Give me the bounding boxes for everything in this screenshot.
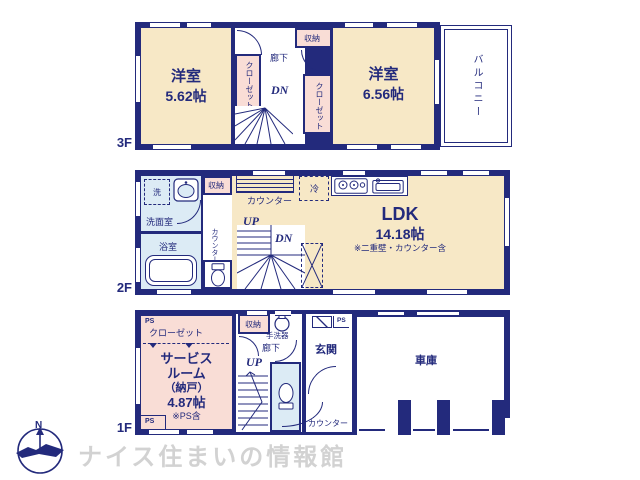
floor-3f-plan: 洋室 5.62帖 クローゼット 廊下: [135, 22, 440, 150]
window: [135, 182, 141, 216]
service-room-note: ※PS含: [172, 411, 201, 421]
stairs-3f: [235, 106, 293, 144]
window: [427, 289, 467, 295]
toilet-2f: [203, 260, 232, 289]
stairs-3f-dn-label: DN: [271, 83, 288, 97]
balcony-3f: バルコニー: [440, 25, 512, 147]
closet-1f-label: クローゼット: [149, 328, 203, 338]
stairs-1f: [238, 368, 268, 432]
garage-opening: [357, 418, 510, 435]
washer-label: 洗: [153, 188, 161, 197]
compass-north-icon: [12, 424, 68, 476]
garage-curb-line: [359, 429, 385, 431]
ps-entry-box: PS: [333, 316, 349, 328]
garage-curb-line: [413, 429, 435, 431]
fridge-label: 冷: [310, 184, 319, 194]
hanger-mark-icon: [149, 343, 157, 348]
hand-basin-icon: [273, 314, 291, 332]
counter-1f-label: カウンター: [308, 419, 348, 428]
window: [378, 311, 404, 316]
window: [347, 144, 377, 150]
room-3f-east-name: 洋室: [368, 66, 398, 83]
kitchen-2f: [331, 176, 408, 196]
service-room-line2: ルーム: [167, 366, 206, 381]
fridge-icon: 冷: [299, 176, 329, 201]
window: [187, 22, 211, 28]
ps-bottom-label: PS: [145, 418, 154, 426]
company-watermark: ナイス住まいの情報館: [78, 437, 347, 472]
window: [417, 311, 459, 316]
floorplan-canvas: 洋室 5.62帖 クローゼット 廊下: [0, 0, 640, 480]
closet-3f-west: クローゼット: [235, 54, 261, 112]
storage-2f: 収納: [203, 176, 232, 195]
stairs-fan-icon: [235, 106, 293, 144]
floor-1f-plan: PS クローゼット サービス ルーム （納戸） 4.87帖 ※PS含: [135, 310, 510, 435]
floor-2f-plan: 洗 洗面室 浴室 収納 カウンター: [135, 170, 510, 295]
closet-3f-west-label: クローゼット: [245, 61, 253, 109]
room-3f-west-size: 5.62帖: [165, 88, 206, 104]
window: [157, 289, 191, 295]
washing-machine-icon: 洗: [144, 179, 170, 205]
window: [275, 310, 291, 316]
entrance-1f: PS 玄関 カウンター: [306, 314, 352, 432]
room-1f-service: PS クローゼット サービス ルーム （納戸） 4.87帖 ※PS含: [141, 316, 232, 429]
stairs-2f-dn-label: DN: [275, 231, 292, 245]
hand-basin-label: 手洗器: [266, 331, 289, 340]
window: [149, 429, 179, 435]
room-3f-west: 洋室 5.62帖: [141, 28, 231, 144]
entrance-label: 玄関: [315, 344, 337, 356]
window: [343, 170, 365, 176]
compass-n-label: N: [35, 420, 42, 432]
counter-2f-side-label: カウンター: [211, 228, 218, 263]
garage-pillar: [398, 400, 411, 435]
counter-2f-top-label: カウンター: [247, 196, 292, 206]
window: [463, 170, 489, 176]
window: [387, 22, 417, 28]
stairs-2f-icon: [237, 225, 305, 289]
window: [150, 22, 180, 28]
service-room-size: 4.87帖: [167, 395, 205, 410]
garage-label: 車庫: [415, 355, 437, 367]
stairs-2f-up-label: UP: [243, 214, 259, 228]
floor-2f-label: 2F: [108, 280, 132, 295]
service-room-line1: サービス: [160, 351, 212, 366]
stairs-1f-up-label: UP: [246, 355, 262, 369]
closet-3f-east: クローゼット: [303, 74, 332, 134]
washbasin-icon: [173, 178, 199, 202]
floor-3f-label: 3F: [108, 135, 132, 150]
balcony-label: バルコニー: [471, 54, 481, 119]
window: [421, 170, 447, 176]
window: [135, 56, 141, 102]
window: [247, 310, 267, 316]
window: [333, 289, 375, 295]
counter-2f-top: [236, 174, 294, 193]
window: [345, 22, 373, 28]
closet-3f-east-label: クローゼット: [315, 82, 323, 130]
ps-top-label: PS: [145, 318, 154, 326]
pantry-x-brace-icon: [301, 243, 323, 288]
shoe-cabinet-hatch: [312, 316, 332, 328]
room-3f-west-name: 洋室: [171, 68, 201, 85]
toilet-icon: [209, 263, 227, 287]
window: [135, 348, 141, 404]
storage-3f: 収納: [295, 28, 332, 48]
ldk-name: LDK: [382, 204, 419, 224]
ldk-size: 14.18帖: [375, 226, 424, 242]
window: [504, 198, 510, 246]
storage-3f-label: 収納: [304, 34, 320, 43]
floor-1f-label: 1F: [108, 420, 132, 435]
window: [153, 144, 191, 150]
storage-2f-label: 収納: [208, 181, 224, 190]
service-room-line3: （納戸）: [165, 382, 209, 394]
hallway-3f-label: 廊下: [270, 53, 288, 63]
bathroom-label: 浴室: [159, 242, 177, 252]
ps-bottom-box: PS: [141, 415, 166, 430]
window: [187, 429, 213, 435]
storage-1f-label: 収納: [245, 320, 261, 329]
garage-pillar: [492, 400, 505, 435]
ldk-note: ※二重壁・カウンター含: [354, 243, 446, 253]
garage-curb-line: [453, 429, 489, 431]
hanger-mark-icon: [185, 343, 193, 348]
washroom-label: 洗面室: [146, 217, 173, 227]
garage-pillar: [437, 400, 450, 435]
stairs-2f: [237, 225, 305, 289]
stove-icon: [334, 178, 368, 194]
window: [253, 170, 285, 176]
ps-entry-label: PS: [337, 317, 346, 324]
room-3f-east: 洋室 6.56帖: [333, 28, 434, 144]
stairs-1f-icon: [238, 368, 268, 432]
room-2f-bathroom: 浴室: [141, 234, 201, 289]
room-3f-east-size: 6.56帖: [363, 86, 404, 102]
kitchen-sink-icon: [372, 178, 404, 194]
door-arc-entrance-icon: [308, 366, 336, 394]
window: [391, 144, 421, 150]
window: [135, 248, 141, 282]
bathtub-icon: [145, 255, 197, 286]
